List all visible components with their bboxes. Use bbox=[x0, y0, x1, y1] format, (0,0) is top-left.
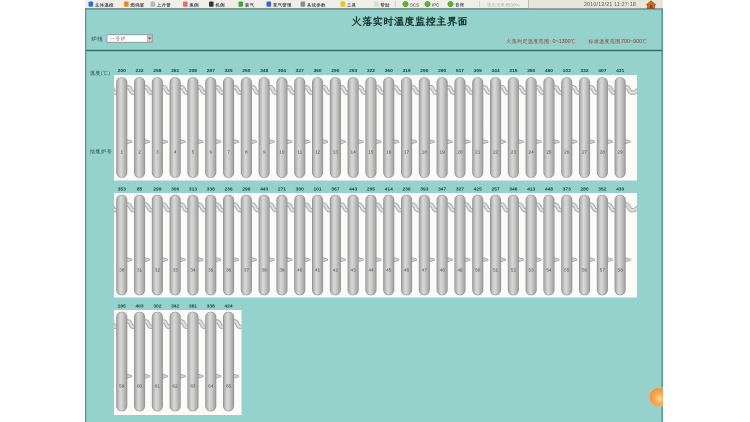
svg-text:295: 295 bbox=[367, 187, 375, 193]
svg-text:45: 45 bbox=[386, 268, 392, 273]
svg-text:325: 325 bbox=[224, 68, 232, 74]
svg-text:54: 54 bbox=[546, 268, 552, 273]
svg-text:60: 60 bbox=[137, 384, 143, 389]
svg-text:102: 102 bbox=[563, 68, 571, 74]
svg-text:373: 373 bbox=[563, 187, 571, 193]
svg-text:21: 21 bbox=[475, 150, 481, 155]
svg-text:258: 258 bbox=[153, 68, 161, 74]
svg-text:346: 346 bbox=[509, 187, 517, 193]
svg-text:236: 236 bbox=[224, 187, 232, 193]
svg-text:55: 55 bbox=[564, 268, 570, 273]
svg-text:23: 23 bbox=[511, 150, 517, 155]
svg-text:236: 236 bbox=[402, 187, 410, 193]
svg-text:1: 1 bbox=[120, 150, 123, 155]
svg-text:38: 38 bbox=[262, 268, 268, 273]
svg-text:293: 293 bbox=[349, 68, 357, 74]
svg-text:SCS: SCS bbox=[410, 2, 419, 7]
svg-text:353: 353 bbox=[118, 187, 126, 193]
svg-text:46: 46 bbox=[404, 268, 410, 273]
svg-text:208: 208 bbox=[189, 68, 197, 74]
svg-text:2010/12/21 11:27:18: 2010/12/21 11:27:18 bbox=[584, 2, 636, 8]
svg-text:290: 290 bbox=[420, 68, 428, 74]
svg-text:200: 200 bbox=[118, 68, 126, 74]
svg-text:14: 14 bbox=[351, 150, 357, 155]
svg-text:34: 34 bbox=[190, 268, 196, 273]
svg-text:430: 430 bbox=[616, 187, 624, 193]
svg-text:257: 257 bbox=[491, 187, 499, 193]
svg-text:26: 26 bbox=[564, 150, 570, 155]
svg-text:407: 407 bbox=[598, 68, 606, 74]
svg-text:32: 32 bbox=[155, 268, 161, 273]
svg-text:35: 35 bbox=[208, 268, 214, 273]
svg-text:50: 50 bbox=[475, 268, 481, 273]
svg-text:348: 348 bbox=[260, 68, 268, 74]
svg-text:33: 33 bbox=[173, 268, 179, 273]
svg-text:44: 44 bbox=[368, 268, 374, 273]
svg-text:64: 64 bbox=[208, 384, 214, 389]
svg-text:700~900: 700~900 bbox=[621, 39, 642, 45]
svg-text:57: 57 bbox=[600, 268, 606, 273]
svg-text:306: 306 bbox=[171, 187, 179, 193]
svg-text:338: 338 bbox=[207, 187, 215, 193]
svg-text:62: 62 bbox=[173, 384, 179, 389]
svg-text:367: 367 bbox=[331, 187, 339, 193]
svg-text:59: 59 bbox=[119, 384, 125, 389]
svg-text:315: 315 bbox=[509, 68, 517, 74]
svg-text:100%: 100% bbox=[508, 2, 520, 7]
svg-text:31: 31 bbox=[137, 268, 143, 273]
svg-text:360: 360 bbox=[385, 68, 393, 74]
svg-text:28: 28 bbox=[600, 150, 606, 155]
svg-text:47: 47 bbox=[422, 268, 428, 273]
svg-text:360: 360 bbox=[313, 68, 321, 74]
svg-text:300: 300 bbox=[296, 187, 304, 193]
svg-text:338: 338 bbox=[207, 304, 215, 310]
svg-text:319: 319 bbox=[402, 68, 410, 74]
svg-text:15: 15 bbox=[368, 150, 374, 155]
svg-text:9: 9 bbox=[263, 150, 266, 155]
svg-text:17: 17 bbox=[404, 150, 410, 155]
svg-text:260: 260 bbox=[242, 68, 250, 74]
svg-text:327: 327 bbox=[296, 68, 304, 74]
svg-text:19: 19 bbox=[440, 150, 446, 155]
svg-text:40: 40 bbox=[297, 268, 303, 273]
svg-text:85: 85 bbox=[137, 187, 143, 193]
svg-text:58: 58 bbox=[618, 268, 624, 273]
svg-text:41: 41 bbox=[315, 268, 321, 273]
svg-text:381: 381 bbox=[189, 304, 197, 310]
svg-text:414: 414 bbox=[385, 187, 393, 193]
svg-text:350: 350 bbox=[527, 68, 535, 74]
svg-text:24: 24 bbox=[529, 150, 535, 155]
svg-text:271: 271 bbox=[278, 187, 286, 193]
svg-text:287: 287 bbox=[207, 68, 215, 74]
svg-text:42: 42 bbox=[333, 268, 339, 273]
svg-text:4: 4 bbox=[174, 150, 177, 155]
svg-text:49: 49 bbox=[457, 268, 463, 273]
svg-text:63: 63 bbox=[190, 384, 196, 389]
svg-text:304: 304 bbox=[278, 68, 286, 74]
svg-text:56: 56 bbox=[582, 268, 588, 273]
svg-text:403: 403 bbox=[135, 304, 143, 310]
svg-text:8: 8 bbox=[245, 150, 248, 155]
svg-text:517: 517 bbox=[456, 68, 464, 74]
svg-text:352: 352 bbox=[598, 187, 606, 193]
svg-text:302: 302 bbox=[153, 304, 161, 310]
svg-text:413: 413 bbox=[527, 187, 535, 193]
svg-text:39: 39 bbox=[279, 268, 285, 273]
svg-text:18: 18 bbox=[422, 150, 428, 155]
svg-text:IPC: IPC bbox=[432, 2, 439, 7]
svg-text:65: 65 bbox=[226, 384, 232, 389]
svg-text:425: 425 bbox=[474, 187, 482, 193]
svg-text:299: 299 bbox=[153, 187, 161, 193]
svg-text:322: 322 bbox=[367, 68, 375, 74]
svg-text:305: 305 bbox=[474, 68, 482, 74]
svg-text:313: 313 bbox=[189, 187, 197, 193]
svg-text:30: 30 bbox=[119, 268, 125, 273]
svg-text:280: 280 bbox=[580, 187, 588, 193]
svg-text:2: 2 bbox=[138, 150, 141, 155]
svg-text:22: 22 bbox=[493, 150, 499, 155]
svg-text:232: 232 bbox=[135, 68, 143, 74]
svg-text:3: 3 bbox=[156, 150, 159, 155]
svg-text:332: 332 bbox=[580, 68, 588, 74]
svg-text:43: 43 bbox=[351, 268, 357, 273]
svg-text:20: 20 bbox=[457, 150, 463, 155]
svg-text:53: 53 bbox=[529, 268, 535, 273]
svg-text:29: 29 bbox=[618, 150, 624, 155]
svg-text:299: 299 bbox=[242, 187, 250, 193]
svg-text:61: 61 bbox=[155, 384, 161, 389]
svg-text:7: 7 bbox=[227, 150, 230, 155]
svg-text:344: 344 bbox=[491, 68, 499, 74]
svg-text:261: 261 bbox=[171, 68, 179, 74]
svg-text:48: 48 bbox=[440, 268, 446, 273]
svg-text:443: 443 bbox=[260, 187, 268, 193]
svg-text:36: 36 bbox=[226, 268, 232, 273]
svg-text:431: 431 bbox=[616, 68, 624, 74]
svg-text:13: 13 bbox=[333, 150, 339, 155]
svg-text:0~1300: 0~1300 bbox=[553, 39, 571, 45]
svg-text:448: 448 bbox=[545, 187, 553, 193]
svg-text:424: 424 bbox=[224, 304, 232, 310]
svg-text:27: 27 bbox=[582, 150, 588, 155]
svg-text:101: 101 bbox=[313, 187, 321, 193]
svg-text:290: 290 bbox=[438, 68, 446, 74]
svg-text:51: 51 bbox=[493, 268, 499, 273]
svg-text:6: 6 bbox=[209, 150, 212, 155]
svg-text:10: 10 bbox=[279, 150, 285, 155]
svg-text:25: 25 bbox=[546, 150, 552, 155]
svg-text:295: 295 bbox=[118, 304, 126, 310]
svg-text:450: 450 bbox=[545, 68, 553, 74]
svg-text:52: 52 bbox=[511, 268, 517, 273]
svg-text:16: 16 bbox=[386, 150, 392, 155]
svg-text:393: 393 bbox=[420, 187, 428, 193]
svg-text:5: 5 bbox=[192, 150, 195, 155]
svg-text:443: 443 bbox=[349, 187, 357, 193]
svg-text:11: 11 bbox=[297, 150, 302, 155]
svg-text:347: 347 bbox=[438, 187, 446, 193]
svg-text:290: 290 bbox=[331, 68, 339, 74]
svg-text:327: 327 bbox=[456, 187, 464, 193]
svg-text:37: 37 bbox=[244, 268, 250, 273]
svg-text:342: 342 bbox=[171, 304, 179, 310]
svg-text:12: 12 bbox=[315, 150, 321, 155]
